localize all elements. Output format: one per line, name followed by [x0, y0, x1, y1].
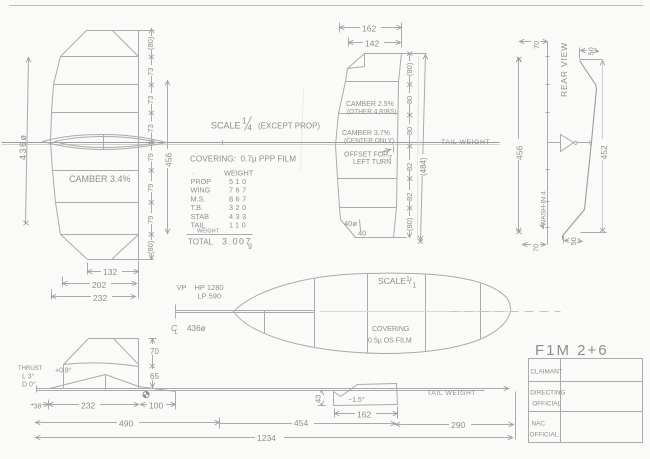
svg-text:232: 232 [81, 401, 95, 411]
svg-text:−1.5°: −1.5° [348, 396, 365, 404]
svg-text:454: 454 [294, 418, 308, 428]
svg-text:M.S.: M.S. [191, 194, 206, 203]
svg-text:+0.8°: +0.8° [55, 367, 72, 375]
svg-text:82: 82 [405, 193, 414, 201]
svg-text:g: g [248, 243, 252, 250]
svg-text:COVERING: 0.7µ PPP FILM: COVERING: 0.7µ PPP FILM [190, 155, 296, 164]
svg-text:1: 1 [242, 117, 247, 126]
svg-text:.: . [192, 167, 194, 176]
svg-text:436ø: 436ø [187, 324, 206, 333]
svg-text:OFFICIAL: OFFICIAL [532, 400, 561, 407]
svg-text:82: 82 [405, 163, 414, 171]
svg-text:0.5µ OS FILM: 0.5µ OS FILM [368, 338, 412, 345]
svg-text:LEFT TURN: LEFT TURN [353, 159, 391, 166]
svg-text:(80): (80) [146, 36, 155, 50]
svg-text:65: 65 [150, 372, 159, 381]
svg-text:STAB: STAB [191, 212, 210, 221]
svg-text:OFFICIAL: OFFICIAL [530, 432, 559, 439]
svg-text:L: L [175, 329, 179, 336]
svg-text:DIRECTING: DIRECTING [530, 390, 565, 397]
svg-text:TOTAL: TOTAL [188, 238, 214, 247]
svg-text:WING: WING [191, 186, 211, 195]
svg-text:CAMBER 2.5%: CAMBER 2.5% [346, 101, 394, 108]
svg-text:40ø: 40ø [344, 219, 357, 228]
svg-text:40: 40 [358, 229, 366, 238]
svg-text:290: 290 [451, 420, 465, 430]
svg-text:7: 7 [388, 153, 392, 162]
svg-text:CLAIMANT: CLAIMANT [530, 369, 562, 376]
svg-text:LP 590: LP 590 [198, 292, 222, 301]
svg-text:(80): (80) [405, 62, 414, 76]
svg-text:(EXCEPT PROP): (EXCEPT PROP) [258, 122, 320, 131]
svg-text:(CENTER ONLY): (CENTER ONLY) [344, 138, 394, 145]
svg-text:232: 232 [93, 293, 107, 303]
svg-text:D 0°: D 0° [22, 381, 36, 389]
svg-text:L 3°: L 3° [22, 373, 34, 381]
svg-text:73: 73 [146, 68, 155, 76]
svg-text:(OTHER 4 RIBS): (OTHER 4 RIBS) [347, 109, 396, 116]
svg-text:100: 100 [149, 401, 163, 411]
svg-text:WEIGHT: WEIGHT [197, 229, 220, 235]
svg-text:80: 80 [405, 96, 414, 104]
svg-text:79: 79 [146, 153, 155, 161]
svg-text:T.B.: T.B. [191, 203, 204, 212]
svg-text:50: 50 [569, 237, 578, 245]
svg-text:70: 70 [150, 347, 159, 356]
svg-text:TAIL WEIGHT: TAIL WEIGHT [441, 139, 490, 146]
svg-text:73: 73 [146, 124, 155, 132]
svg-text:50: 50 [587, 47, 596, 55]
svg-text:F1M 2+6: F1M 2+6 [535, 342, 609, 359]
svg-text:110: 110 [229, 221, 248, 230]
svg-text:VP: VP [177, 283, 187, 292]
svg-text:43: 43 [314, 395, 323, 403]
svg-text:867: 867 [229, 194, 249, 203]
svg-text:THRUST: THRUST [18, 366, 43, 372]
svg-text:162: 162 [357, 410, 371, 420]
svg-text:452: 452 [599, 145, 609, 159]
svg-text:38: 38 [34, 404, 42, 411]
svg-text:142: 142 [365, 39, 379, 49]
svg-text:COVERING: COVERING [372, 326, 409, 333]
svg-text:70: 70 [532, 41, 541, 49]
svg-text:NAC: NAC [532, 421, 546, 428]
svg-text:320: 320 [229, 203, 249, 212]
svg-text:1234: 1234 [257, 433, 276, 443]
svg-text:510: 510 [229, 177, 249, 186]
svg-text:TAIL WEIGHT: TAIL WEIGHT [427, 390, 476, 397]
svg-text:SCALE: SCALE [211, 121, 241, 131]
svg-text:73: 73 [146, 96, 155, 104]
svg-text:1: 1 [413, 283, 417, 290]
svg-text:(80): (80) [405, 217, 414, 231]
svg-text:CAMBER 3.4%: CAMBER 3.4% [69, 174, 131, 184]
svg-text:80: 80 [405, 127, 414, 135]
svg-text:436ø: 436ø [18, 133, 28, 160]
svg-text:(484): (484) [419, 157, 428, 176]
svg-text:162: 162 [362, 24, 376, 34]
svg-text:PROP: PROP [191, 177, 212, 186]
svg-text:456: 456 [164, 153, 174, 167]
svg-text:490: 490 [119, 419, 133, 429]
svg-text:(80): (80) [146, 240, 155, 254]
svg-text:SCALE: SCALE [378, 276, 406, 286]
svg-text:79: 79 [146, 216, 155, 224]
svg-text:4: 4 [248, 124, 253, 133]
svg-text:79: 79 [146, 184, 155, 192]
svg-text:WASH-IN 4: WASH-IN 4 [541, 191, 548, 226]
svg-text:REAR VIEW: REAR VIEW [559, 42, 569, 97]
svg-text:456: 456 [515, 146, 525, 160]
svg-text:OFFSET FOR: OFFSET FOR [344, 152, 388, 159]
svg-text:202: 202 [92, 280, 106, 290]
svg-text:767: 767 [229, 186, 249, 195]
svg-text:CAMBER 3.7%: CAMBER 3.7% [342, 130, 390, 137]
svg-text:70: 70 [532, 244, 541, 252]
svg-text:433: 433 [229, 212, 249, 221]
svg-text:132: 132 [103, 267, 117, 277]
